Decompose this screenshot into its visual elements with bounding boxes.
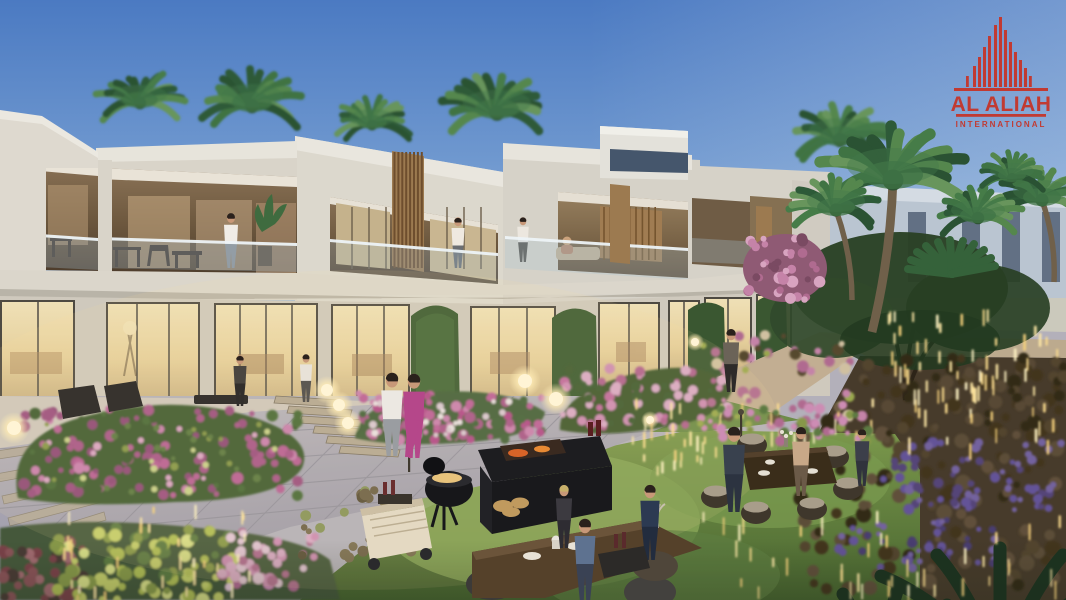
svg-text:AL ALIAH: AL ALIAH (951, 93, 1052, 116)
svg-text:INTERNATIONAL: INTERNATIONAL (956, 120, 1047, 129)
